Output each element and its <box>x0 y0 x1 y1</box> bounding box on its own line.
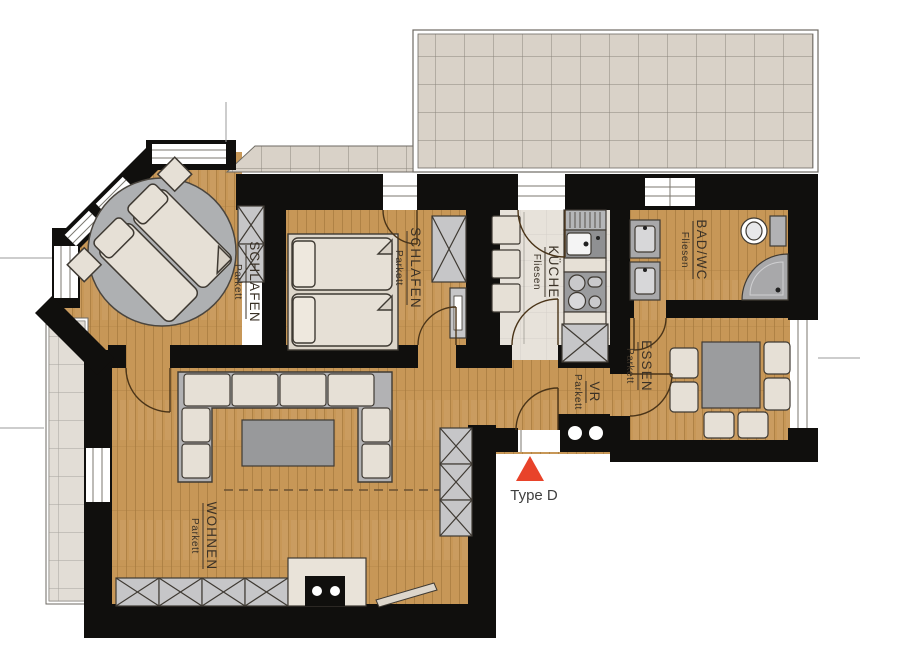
terrace-strip <box>227 146 413 172</box>
pillow <box>293 297 315 343</box>
coffee-table <box>242 420 334 466</box>
dining-chair <box>670 382 698 412</box>
pillow <box>293 241 315 287</box>
type-label: Type D <box>510 487 558 504</box>
balcony-left <box>46 318 88 604</box>
sofa-cushion <box>362 408 390 442</box>
sofa-cushion <box>232 374 278 406</box>
room-flooring: Parkett <box>572 374 583 410</box>
type-marker: Type D <box>510 456 558 504</box>
sofa-cushion <box>328 374 374 406</box>
cooktop <box>564 272 606 312</box>
dish-rack <box>564 210 606 230</box>
dining-chair <box>764 378 790 410</box>
dining-table <box>702 342 760 408</box>
window-bad-wc <box>645 178 695 206</box>
dining-chair <box>704 412 734 438</box>
wardrobe-schlafen-2 <box>432 216 466 282</box>
wardrobe-row-wohnen <box>116 578 288 606</box>
dining-chair <box>738 412 768 438</box>
counter <box>564 258 606 272</box>
kitchen-stools <box>492 216 520 312</box>
double-bed-2 <box>288 234 398 350</box>
room-name: SCHLAFEN <box>247 241 262 323</box>
kitchen-sink <box>564 230 606 258</box>
floor-plan-page: SCHLAFEN Parkett SCHLAFEN Parkett KÜCHE … <box>0 0 900 650</box>
room-name: WOHNEN <box>204 502 219 571</box>
wardrobe-column-wohnen <box>440 428 472 536</box>
window-essen-right <box>790 320 816 428</box>
entrance-triangle-icon <box>516 456 544 481</box>
room-flooring: Parkett <box>232 264 243 300</box>
terrace <box>413 30 818 172</box>
room-name: VR <box>587 381 602 402</box>
sofa-cushion <box>184 374 230 406</box>
room-name: KÜCHE <box>546 245 561 298</box>
room-flooring: Parkett <box>393 250 404 286</box>
sofa-cushion <box>182 444 210 478</box>
fridge-cabinet <box>562 324 608 362</box>
counter <box>564 312 606 324</box>
dresser-schlafen-2 <box>450 288 466 338</box>
kitchen-appliance-row <box>562 210 608 362</box>
room-name: SCHLAFEN <box>408 227 423 309</box>
entrance-door-gap <box>518 430 560 452</box>
floor-plan: SCHLAFEN Parkett SCHLAFEN Parkett KÜCHE … <box>0 0 900 650</box>
room-flooring: Fliesen <box>679 232 690 268</box>
fireplace <box>288 558 366 606</box>
room-flooring: Parkett <box>624 348 635 384</box>
terrace-door-schlafen-2 <box>383 174 417 210</box>
dining-chair <box>764 342 790 374</box>
room-name: BAD/WC <box>694 219 709 280</box>
window-wohnen-left <box>86 448 110 502</box>
room-name: ESSEN <box>639 340 654 392</box>
dining-chair <box>670 348 698 378</box>
sofa-cushion <box>280 374 326 406</box>
room-flooring: Fliesen <box>531 254 542 290</box>
terrace-door-kueche <box>518 174 565 210</box>
sofa-cushion <box>362 444 390 478</box>
window-top-schlafen-1 <box>152 144 226 164</box>
room-flooring: Parkett <box>189 518 200 554</box>
sofa-cushion <box>182 408 210 442</box>
